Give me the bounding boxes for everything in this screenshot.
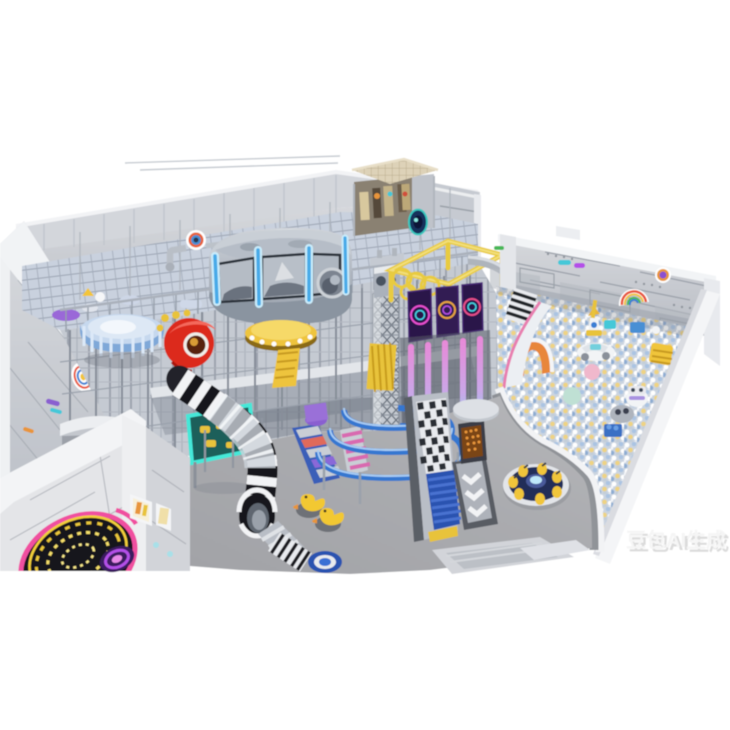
svg-text:豆包AI生成: 豆包AI生成 <box>626 528 726 552</box>
